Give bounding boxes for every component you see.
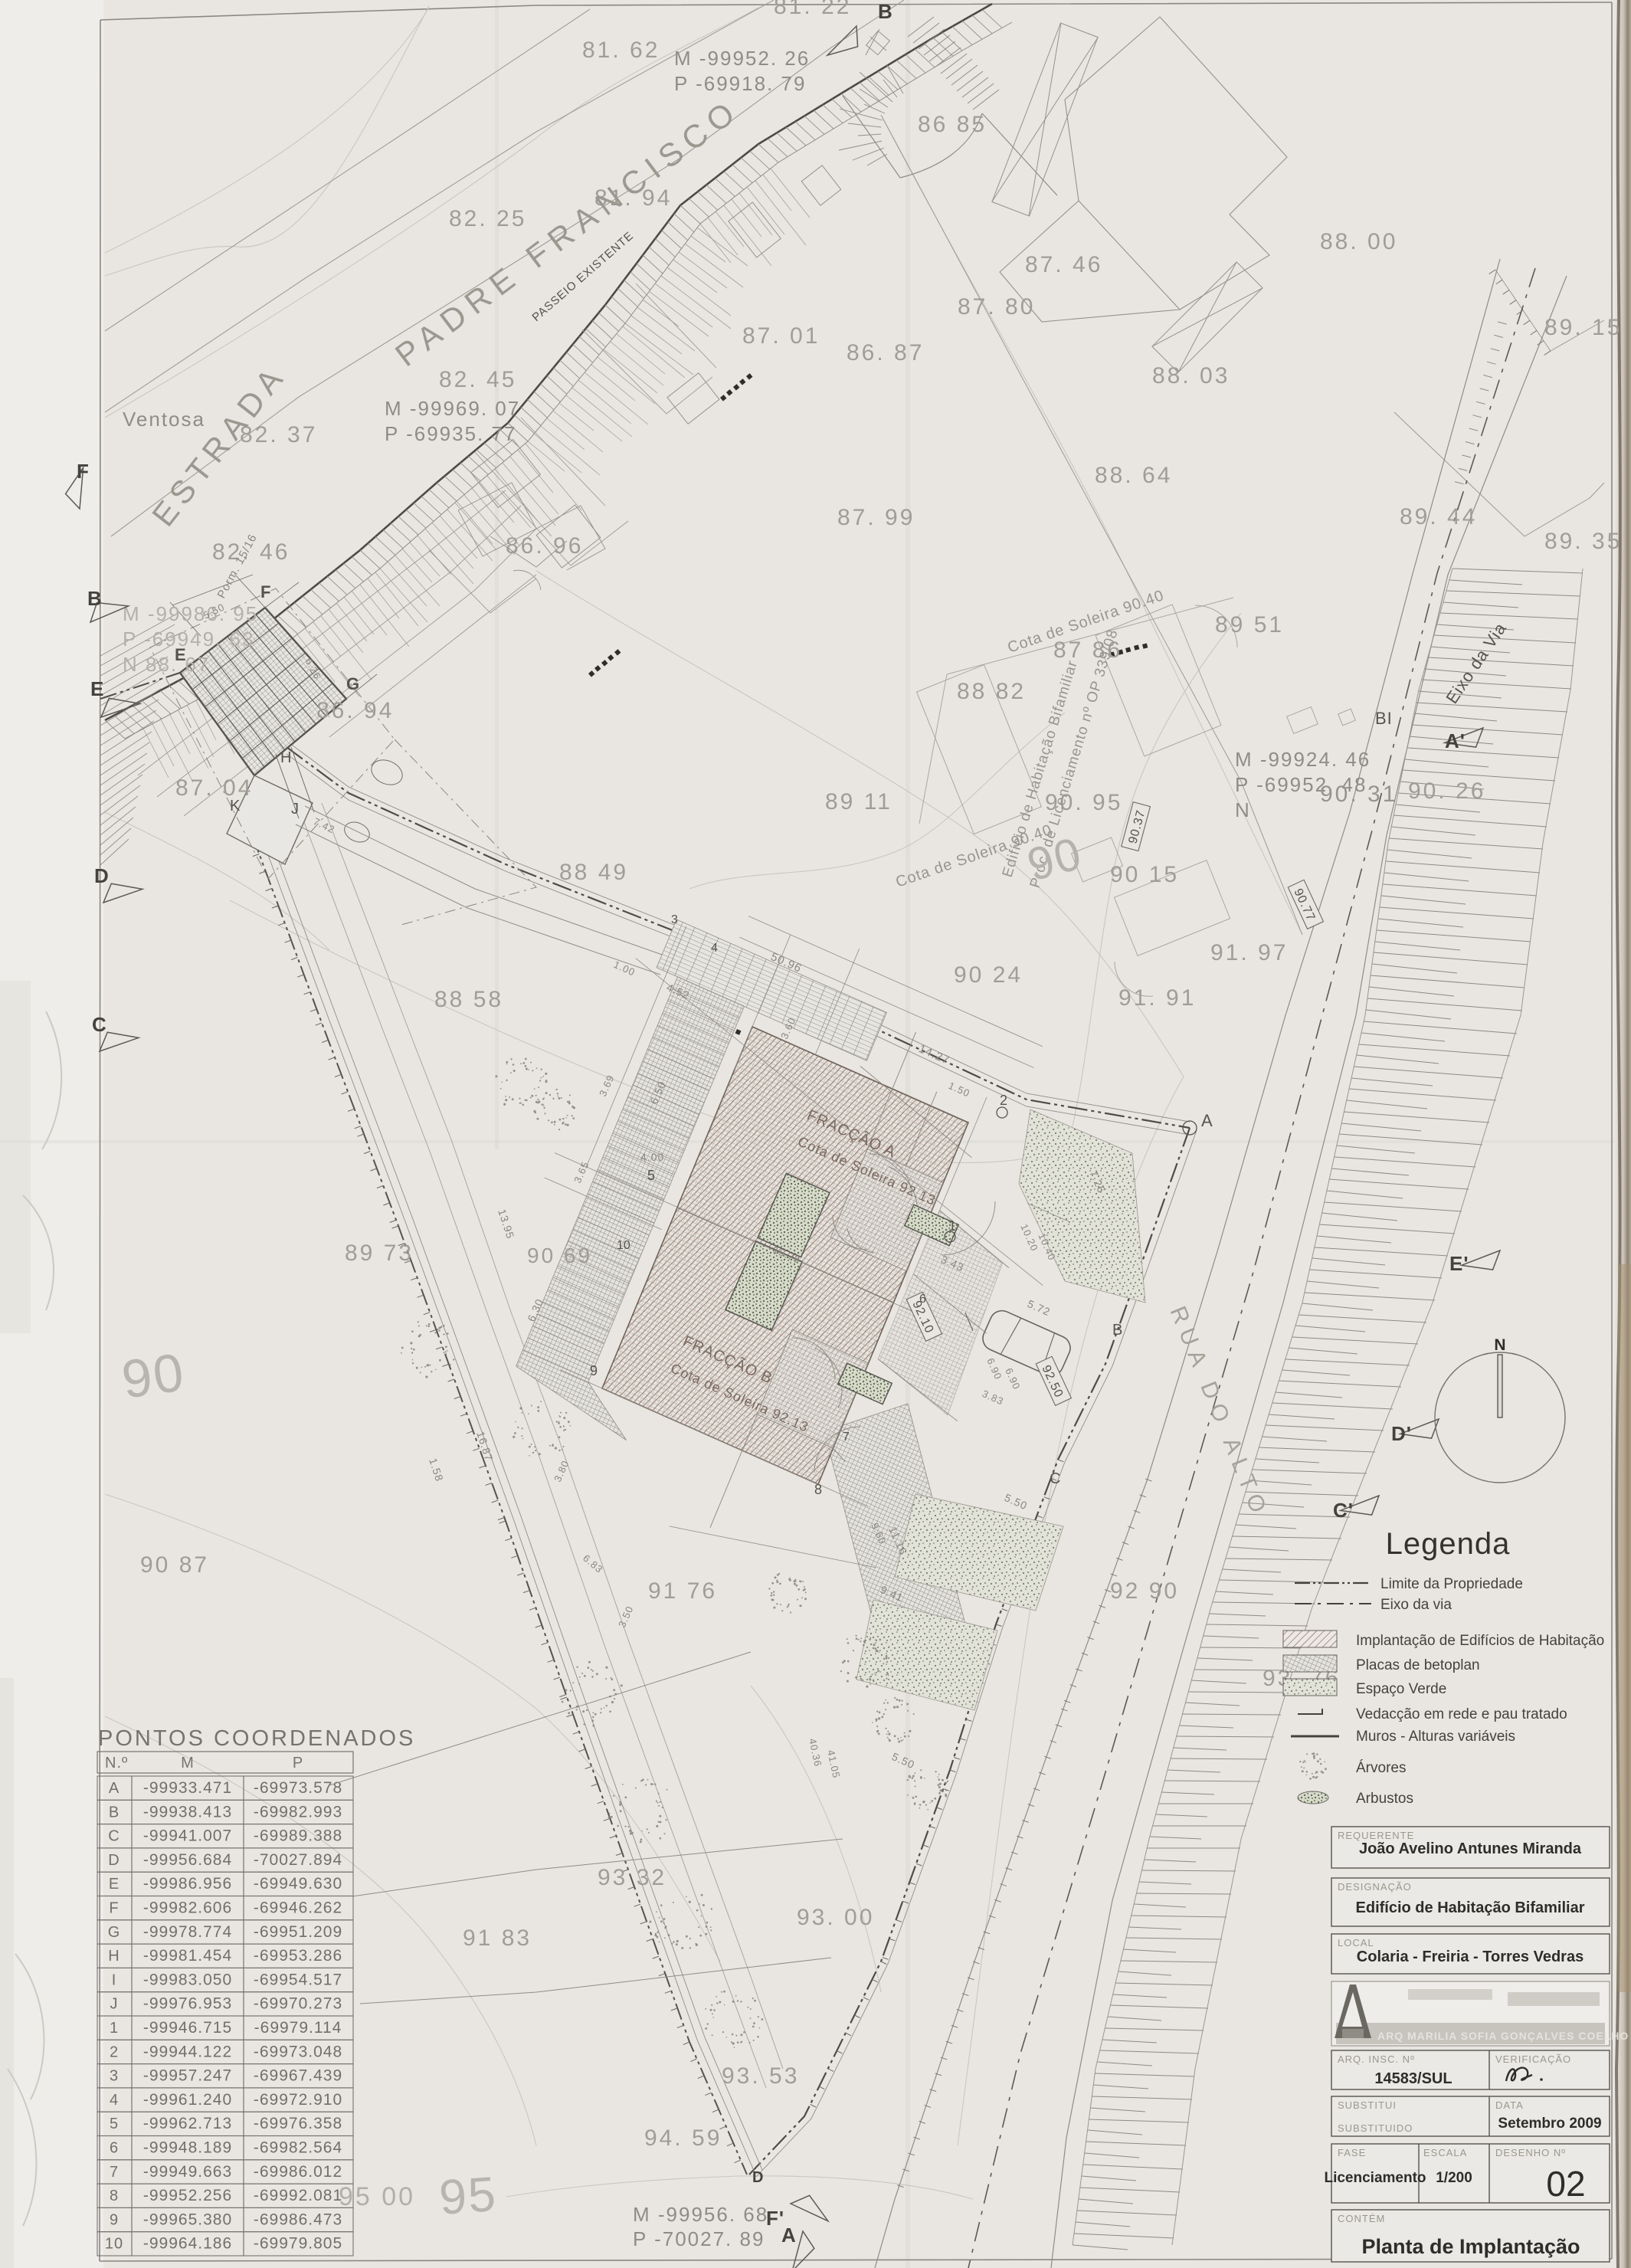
svg-text:CONTÉM: CONTÉM bbox=[1338, 2213, 1385, 2224]
svg-text:-99982.606: -99982.606 bbox=[143, 1899, 232, 1917]
svg-text:10: 10 bbox=[105, 2236, 123, 2253]
svg-text:82. 25: 82. 25 bbox=[449, 206, 526, 231]
svg-text:3: 3 bbox=[110, 2068, 119, 2085]
svg-text:D: D bbox=[94, 864, 110, 887]
svg-text:-69970.273: -69970.273 bbox=[254, 1995, 342, 2013]
svg-text:E: E bbox=[175, 645, 186, 664]
svg-text:Limite da Propriedade: Limite da Propriedade bbox=[1380, 1576, 1523, 1592]
svg-text:93 32: 93 32 bbox=[598, 1865, 666, 1890]
svg-text:90. 26: 90. 26 bbox=[1408, 778, 1485, 804]
svg-text:-99978.774: -99978.774 bbox=[143, 1923, 232, 1941]
svg-text:87. 80: 87. 80 bbox=[958, 294, 1035, 320]
svg-text:88. 03: 88. 03 bbox=[1152, 363, 1230, 388]
svg-text:90. 31: 90. 31 bbox=[1320, 782, 1397, 807]
svg-text:M -99956. 68: M -99956. 68 bbox=[633, 2203, 768, 2226]
svg-text:N: N bbox=[1494, 1336, 1505, 1354]
svg-text:89 73: 89 73 bbox=[345, 1241, 414, 1266]
svg-text:PONTOS COORDENADOS: PONTOS COORDENADOS bbox=[98, 1726, 415, 1751]
svg-text:-99952.256: -99952.256 bbox=[143, 2187, 232, 2204]
svg-text:88 58: 88 58 bbox=[434, 987, 503, 1012]
svg-text:-69982.564: -69982.564 bbox=[254, 2139, 342, 2157]
svg-text:-99948.189: -99948.189 bbox=[143, 2139, 232, 2157]
svg-text:D': D' bbox=[1391, 1422, 1412, 1445]
svg-text:90 69: 90 69 bbox=[527, 1244, 592, 1267]
svg-text:I: I bbox=[112, 1971, 117, 1988]
svg-text:F': F' bbox=[766, 2207, 784, 2230]
svg-text:95: 95 bbox=[437, 2166, 499, 2225]
svg-text:-99965.380: -99965.380 bbox=[143, 2211, 232, 2228]
svg-text:H: H bbox=[108, 1948, 120, 1965]
svg-text:K: K bbox=[230, 798, 241, 814]
svg-text:95 00: 95 00 bbox=[339, 2182, 415, 2211]
svg-text:ARQ MARILIA SOFIA GONÇALVES CO: ARQ MARILIA SOFIA GONÇALVES COELHO bbox=[1377, 2030, 1629, 2042]
svg-text:8: 8 bbox=[110, 2188, 119, 2204]
svg-text:-99962.713: -99962.713 bbox=[143, 2115, 232, 2132]
svg-text:E: E bbox=[109, 1876, 120, 1893]
svg-text:Colaria - Freiria - Torres Ved: Colaria - Freiria - Torres Vedras bbox=[1357, 1948, 1584, 1965]
svg-text:M -99952. 26: M -99952. 26 bbox=[674, 47, 810, 70]
svg-text:Árvores: Árvores bbox=[1356, 1760, 1406, 1776]
svg-text:-69979.805: -69979.805 bbox=[254, 2235, 342, 2253]
svg-text:-69949.630: -69949.630 bbox=[254, 1875, 342, 1893]
svg-text:-99956.684: -99956.684 bbox=[143, 1851, 232, 1869]
svg-text:A': A' bbox=[1445, 729, 1466, 752]
svg-text:-99976.953: -99976.953 bbox=[143, 1995, 232, 2013]
svg-text:SUBSTITUIDO: SUBSTITUIDO bbox=[1338, 2122, 1413, 2134]
svg-text:FASE: FASE bbox=[1338, 2147, 1366, 2158]
svg-text:B: B bbox=[878, 0, 893, 23]
svg-text:-69967.439: -69967.439 bbox=[254, 2067, 342, 2085]
svg-text:Eixo da via: Eixo da via bbox=[1380, 1597, 1452, 1613]
svg-text:Planta de Implantação: Planta de Implantação bbox=[1361, 2235, 1580, 2258]
svg-text:P -69918. 79: P -69918. 79 bbox=[674, 72, 806, 95]
svg-text:8: 8 bbox=[814, 1482, 822, 1497]
svg-text:87. 99: 87. 99 bbox=[837, 505, 915, 530]
svg-text:Placas de betoplan: Placas de betoplan bbox=[1356, 1657, 1480, 1673]
svg-text:-99933.471: -99933.471 bbox=[143, 1779, 232, 1797]
svg-text:P -69949. 63: P -69949. 63 bbox=[123, 628, 254, 651]
svg-text:5: 5 bbox=[110, 2116, 119, 2132]
svg-text:7: 7 bbox=[843, 1431, 850, 1444]
svg-text:10: 10 bbox=[617, 1239, 630, 1252]
svg-text:Legenda: Legenda bbox=[1386, 1527, 1511, 1561]
svg-text:4.00: 4.00 bbox=[640, 1151, 664, 1163]
svg-text:-99957.247: -99957.247 bbox=[143, 2067, 232, 2085]
svg-text:C: C bbox=[1050, 1470, 1060, 1487]
svg-text:87. 04: 87. 04 bbox=[175, 775, 253, 801]
svg-text:-69992.081: -69992.081 bbox=[254, 2187, 342, 2204]
svg-text:-69989.388: -69989.388 bbox=[254, 1827, 342, 1845]
svg-text:-69954.517: -69954.517 bbox=[254, 1971, 342, 1988]
svg-text:81. 22: 81. 22 bbox=[774, 0, 851, 19]
svg-text:91 76: 91 76 bbox=[648, 1578, 717, 1604]
svg-text:9: 9 bbox=[110, 2211, 119, 2228]
svg-text:LOCAL: LOCAL bbox=[1338, 1937, 1374, 1948]
svg-text:91. 91: 91. 91 bbox=[1118, 985, 1196, 1011]
svg-text:E': E' bbox=[1449, 1252, 1469, 1275]
svg-text:Edifício de Habitação Bifamili: Edifício de Habitação Bifamiliar bbox=[1356, 1899, 1585, 1916]
svg-text:REQUERENTE: REQUERENTE bbox=[1338, 1830, 1414, 1841]
svg-text:M: M bbox=[181, 1755, 195, 1771]
svg-text:F: F bbox=[260, 582, 270, 601]
svg-text:F: F bbox=[109, 1900, 119, 1917]
svg-text:P -69935. 77: P -69935. 77 bbox=[385, 422, 516, 445]
svg-text:89 11: 89 11 bbox=[825, 789, 892, 814]
svg-text:-99938.413: -99938.413 bbox=[143, 1803, 232, 1821]
svg-text:90 15: 90 15 bbox=[1110, 862, 1179, 887]
svg-text:81. 62: 81. 62 bbox=[582, 38, 660, 63]
svg-text:88 82: 88 82 bbox=[957, 679, 1026, 704]
svg-text:N 88. 67: N 88. 67 bbox=[123, 653, 210, 676]
svg-text:86 85: 86 85 bbox=[918, 112, 987, 137]
svg-text:B: B bbox=[87, 587, 103, 610]
svg-text:-99944.122: -99944.122 bbox=[143, 2043, 232, 2060]
svg-text:D: D bbox=[752, 2169, 763, 2186]
svg-text:89 51: 89 51 bbox=[1215, 612, 1284, 637]
svg-text:-69972.910: -69972.910 bbox=[254, 2091, 342, 2109]
svg-text:Vedacção em rede e pau tratado: Vedacção em rede e pau tratado bbox=[1356, 1706, 1567, 1722]
svg-text:Implantação de Edifícios de Ha: Implantação de Edifícios de Habitação bbox=[1356, 1633, 1604, 1649]
svg-text:90: 90 bbox=[118, 1342, 188, 1410]
svg-text:88 49: 88 49 bbox=[559, 860, 628, 885]
svg-text:88. 64: 88. 64 bbox=[1095, 463, 1172, 488]
svg-text:86. 87: 86. 87 bbox=[847, 340, 924, 365]
svg-text:Ventosa: Ventosa bbox=[123, 408, 205, 431]
svg-text:G: G bbox=[346, 674, 359, 693]
svg-text:-69986.012: -69986.012 bbox=[254, 2163, 342, 2181]
svg-text:M -99924. 46: M -99924. 46 bbox=[1235, 748, 1371, 771]
svg-text:M -99969. 07: M -99969. 07 bbox=[385, 397, 520, 420]
svg-text:82. 45: 82. 45 bbox=[439, 367, 516, 392]
svg-text:P: P bbox=[293, 1755, 303, 1771]
svg-text:5: 5 bbox=[647, 1168, 655, 1183]
svg-text:A: A bbox=[109, 1780, 120, 1797]
svg-text:-69946.262: -69946.262 bbox=[254, 1899, 342, 1917]
svg-text:6: 6 bbox=[110, 2140, 119, 2157]
svg-text:9: 9 bbox=[590, 1363, 598, 1378]
svg-text:DESIGNAÇÃO: DESIGNAÇÃO bbox=[1338, 1881, 1412, 1893]
svg-text:-69979.114: -69979.114 bbox=[254, 2019, 342, 2037]
svg-text:1/200: 1/200 bbox=[1436, 2170, 1472, 2186]
svg-text:J: J bbox=[110, 1996, 119, 2013]
svg-text:-70027.894: -70027.894 bbox=[254, 1851, 342, 1869]
svg-text:-99961.240: -99961.240 bbox=[143, 2091, 232, 2109]
svg-text:89. 35: 89. 35 bbox=[1544, 529, 1622, 554]
svg-text:DATA: DATA bbox=[1495, 2099, 1524, 2111]
svg-text:-69953.286: -69953.286 bbox=[254, 1947, 342, 1965]
svg-text:93. 53: 93. 53 bbox=[722, 2063, 799, 2089]
svg-text:Setembro 2009: Setembro 2009 bbox=[1498, 2116, 1601, 2132]
svg-text:-69951.209: -69951.209 bbox=[254, 1923, 342, 1941]
svg-text:90 87: 90 87 bbox=[140, 1552, 209, 1578]
svg-text:92 90: 92 90 bbox=[1110, 1578, 1179, 1604]
svg-text:2: 2 bbox=[110, 2043, 119, 2060]
svg-text:3: 3 bbox=[671, 913, 678, 926]
svg-text:87. 46: 87. 46 bbox=[1025, 252, 1102, 277]
svg-text:-99964.186: -99964.186 bbox=[143, 2235, 232, 2253]
svg-text:C': C' bbox=[1333, 1499, 1354, 1522]
svg-text:86. 94: 86. 94 bbox=[316, 698, 394, 723]
svg-text:1: 1 bbox=[948, 1218, 956, 1234]
svg-text:VERIFICAÇÃO: VERIFICAÇÃO bbox=[1495, 2053, 1571, 2065]
svg-text:2: 2 bbox=[1000, 1093, 1007, 1108]
svg-text:G: G bbox=[108, 1924, 121, 1941]
svg-text:94. 59: 94. 59 bbox=[644, 2125, 722, 2151]
svg-text:H: H bbox=[280, 749, 291, 766]
svg-text:D: D bbox=[108, 1852, 120, 1869]
svg-text:B: B bbox=[1112, 1322, 1122, 1339]
svg-text:-69982.993: -69982.993 bbox=[254, 1803, 342, 1821]
svg-text:C: C bbox=[108, 1828, 120, 1845]
svg-text:14583/SUL: 14583/SUL bbox=[1374, 2070, 1452, 2087]
svg-text:1: 1 bbox=[110, 2020, 119, 2037]
svg-text:J: J bbox=[291, 801, 299, 818]
svg-text:F: F bbox=[77, 460, 90, 483]
svg-text:-99949.663: -99949.663 bbox=[143, 2163, 232, 2181]
svg-text:DESENHO Nº: DESENHO Nº bbox=[1495, 2147, 1566, 2158]
svg-text:89. 44: 89. 44 bbox=[1400, 504, 1477, 529]
svg-text:-99981.454: -99981.454 bbox=[143, 1947, 232, 1965]
svg-text:-99946.715: -99946.715 bbox=[143, 2019, 232, 2037]
svg-text:B: B bbox=[109, 1804, 120, 1821]
svg-text:M -99986. 95: M -99986. 95 bbox=[123, 602, 258, 625]
svg-text:-99941.007: -99941.007 bbox=[143, 1827, 232, 1845]
svg-text:89. 15: 89. 15 bbox=[1544, 315, 1622, 340]
svg-text:4: 4 bbox=[110, 2092, 119, 2109]
svg-text:ESCALA: ESCALA bbox=[1423, 2147, 1467, 2158]
svg-text:91 83: 91 83 bbox=[463, 1926, 532, 1951]
svg-text:90 24: 90 24 bbox=[954, 962, 1023, 988]
svg-text:-69986.473: -69986.473 bbox=[254, 2211, 342, 2228]
svg-text:Muros - Alturas variáveis: Muros - Alturas variáveis bbox=[1356, 1729, 1515, 1745]
svg-text:Licenciamento: Licenciamento bbox=[1324, 2170, 1426, 2186]
svg-text:-99986.956: -99986.956 bbox=[143, 1875, 232, 1893]
svg-text:ARQ. INSC. Nº: ARQ. INSC. Nº bbox=[1338, 2053, 1415, 2065]
svg-text:BI: BI bbox=[1375, 709, 1393, 728]
svg-text:E: E bbox=[90, 677, 104, 700]
svg-text:88. 00: 88. 00 bbox=[1320, 229, 1397, 254]
svg-text:6: 6 bbox=[919, 1293, 926, 1306]
svg-text:N.º: N.º bbox=[105, 1755, 128, 1771]
svg-text:02: 02 bbox=[1546, 2164, 1585, 2204]
svg-text:-69976.358: -69976.358 bbox=[254, 2115, 342, 2132]
svg-text:João Avelino Antunes Miranda: João Avelino Antunes Miranda bbox=[1359, 1840, 1582, 1857]
svg-text:-69973.578: -69973.578 bbox=[254, 1779, 342, 1797]
svg-text:93. 00: 93. 00 bbox=[797, 1905, 874, 1930]
svg-text:-69973.048: -69973.048 bbox=[254, 2043, 342, 2060]
svg-text:Arbustos: Arbustos bbox=[1356, 1791, 1413, 1807]
svg-text:Espaço Verde: Espaço Verde bbox=[1356, 1681, 1446, 1697]
svg-text:-99983.050: -99983.050 bbox=[143, 1971, 232, 1988]
svg-text:C: C bbox=[92, 1013, 107, 1036]
svg-text:4: 4 bbox=[711, 942, 718, 955]
svg-text:N: N bbox=[1235, 798, 1251, 821]
svg-text:86. 96: 86. 96 bbox=[506, 533, 583, 559]
svg-text:SUBSTITUI: SUBSTITUI bbox=[1338, 2099, 1397, 2111]
svg-text:87. 01: 87. 01 bbox=[742, 323, 820, 349]
svg-text:A: A bbox=[1201, 1111, 1213, 1130]
svg-text:91. 97: 91. 97 bbox=[1210, 940, 1288, 965]
svg-text:P -70027. 89: P -70027. 89 bbox=[633, 2227, 765, 2250]
svg-text:7: 7 bbox=[110, 2164, 119, 2181]
